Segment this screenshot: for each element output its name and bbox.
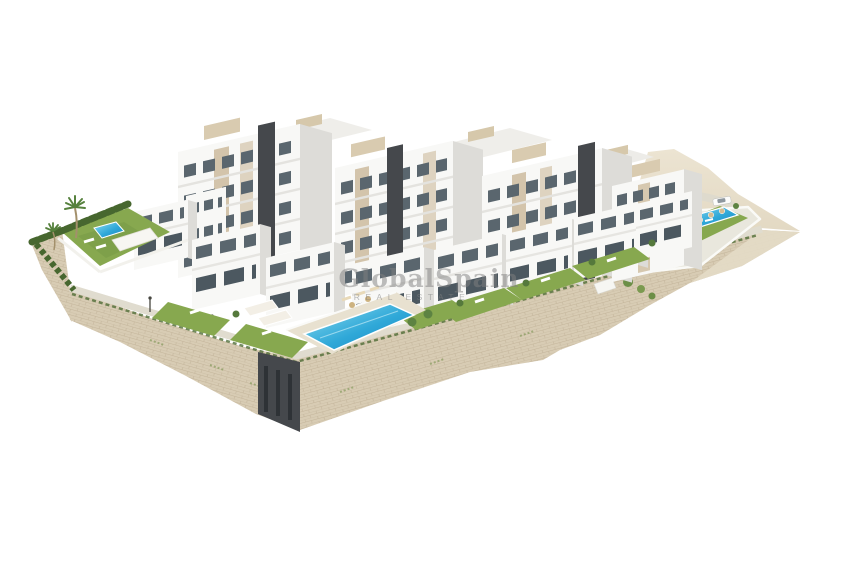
- real-estate-render: GlobalSpain REAL ESTATE: [0, 0, 850, 572]
- render-scene: [0, 0, 850, 572]
- deck-umbrella: [349, 302, 355, 308]
